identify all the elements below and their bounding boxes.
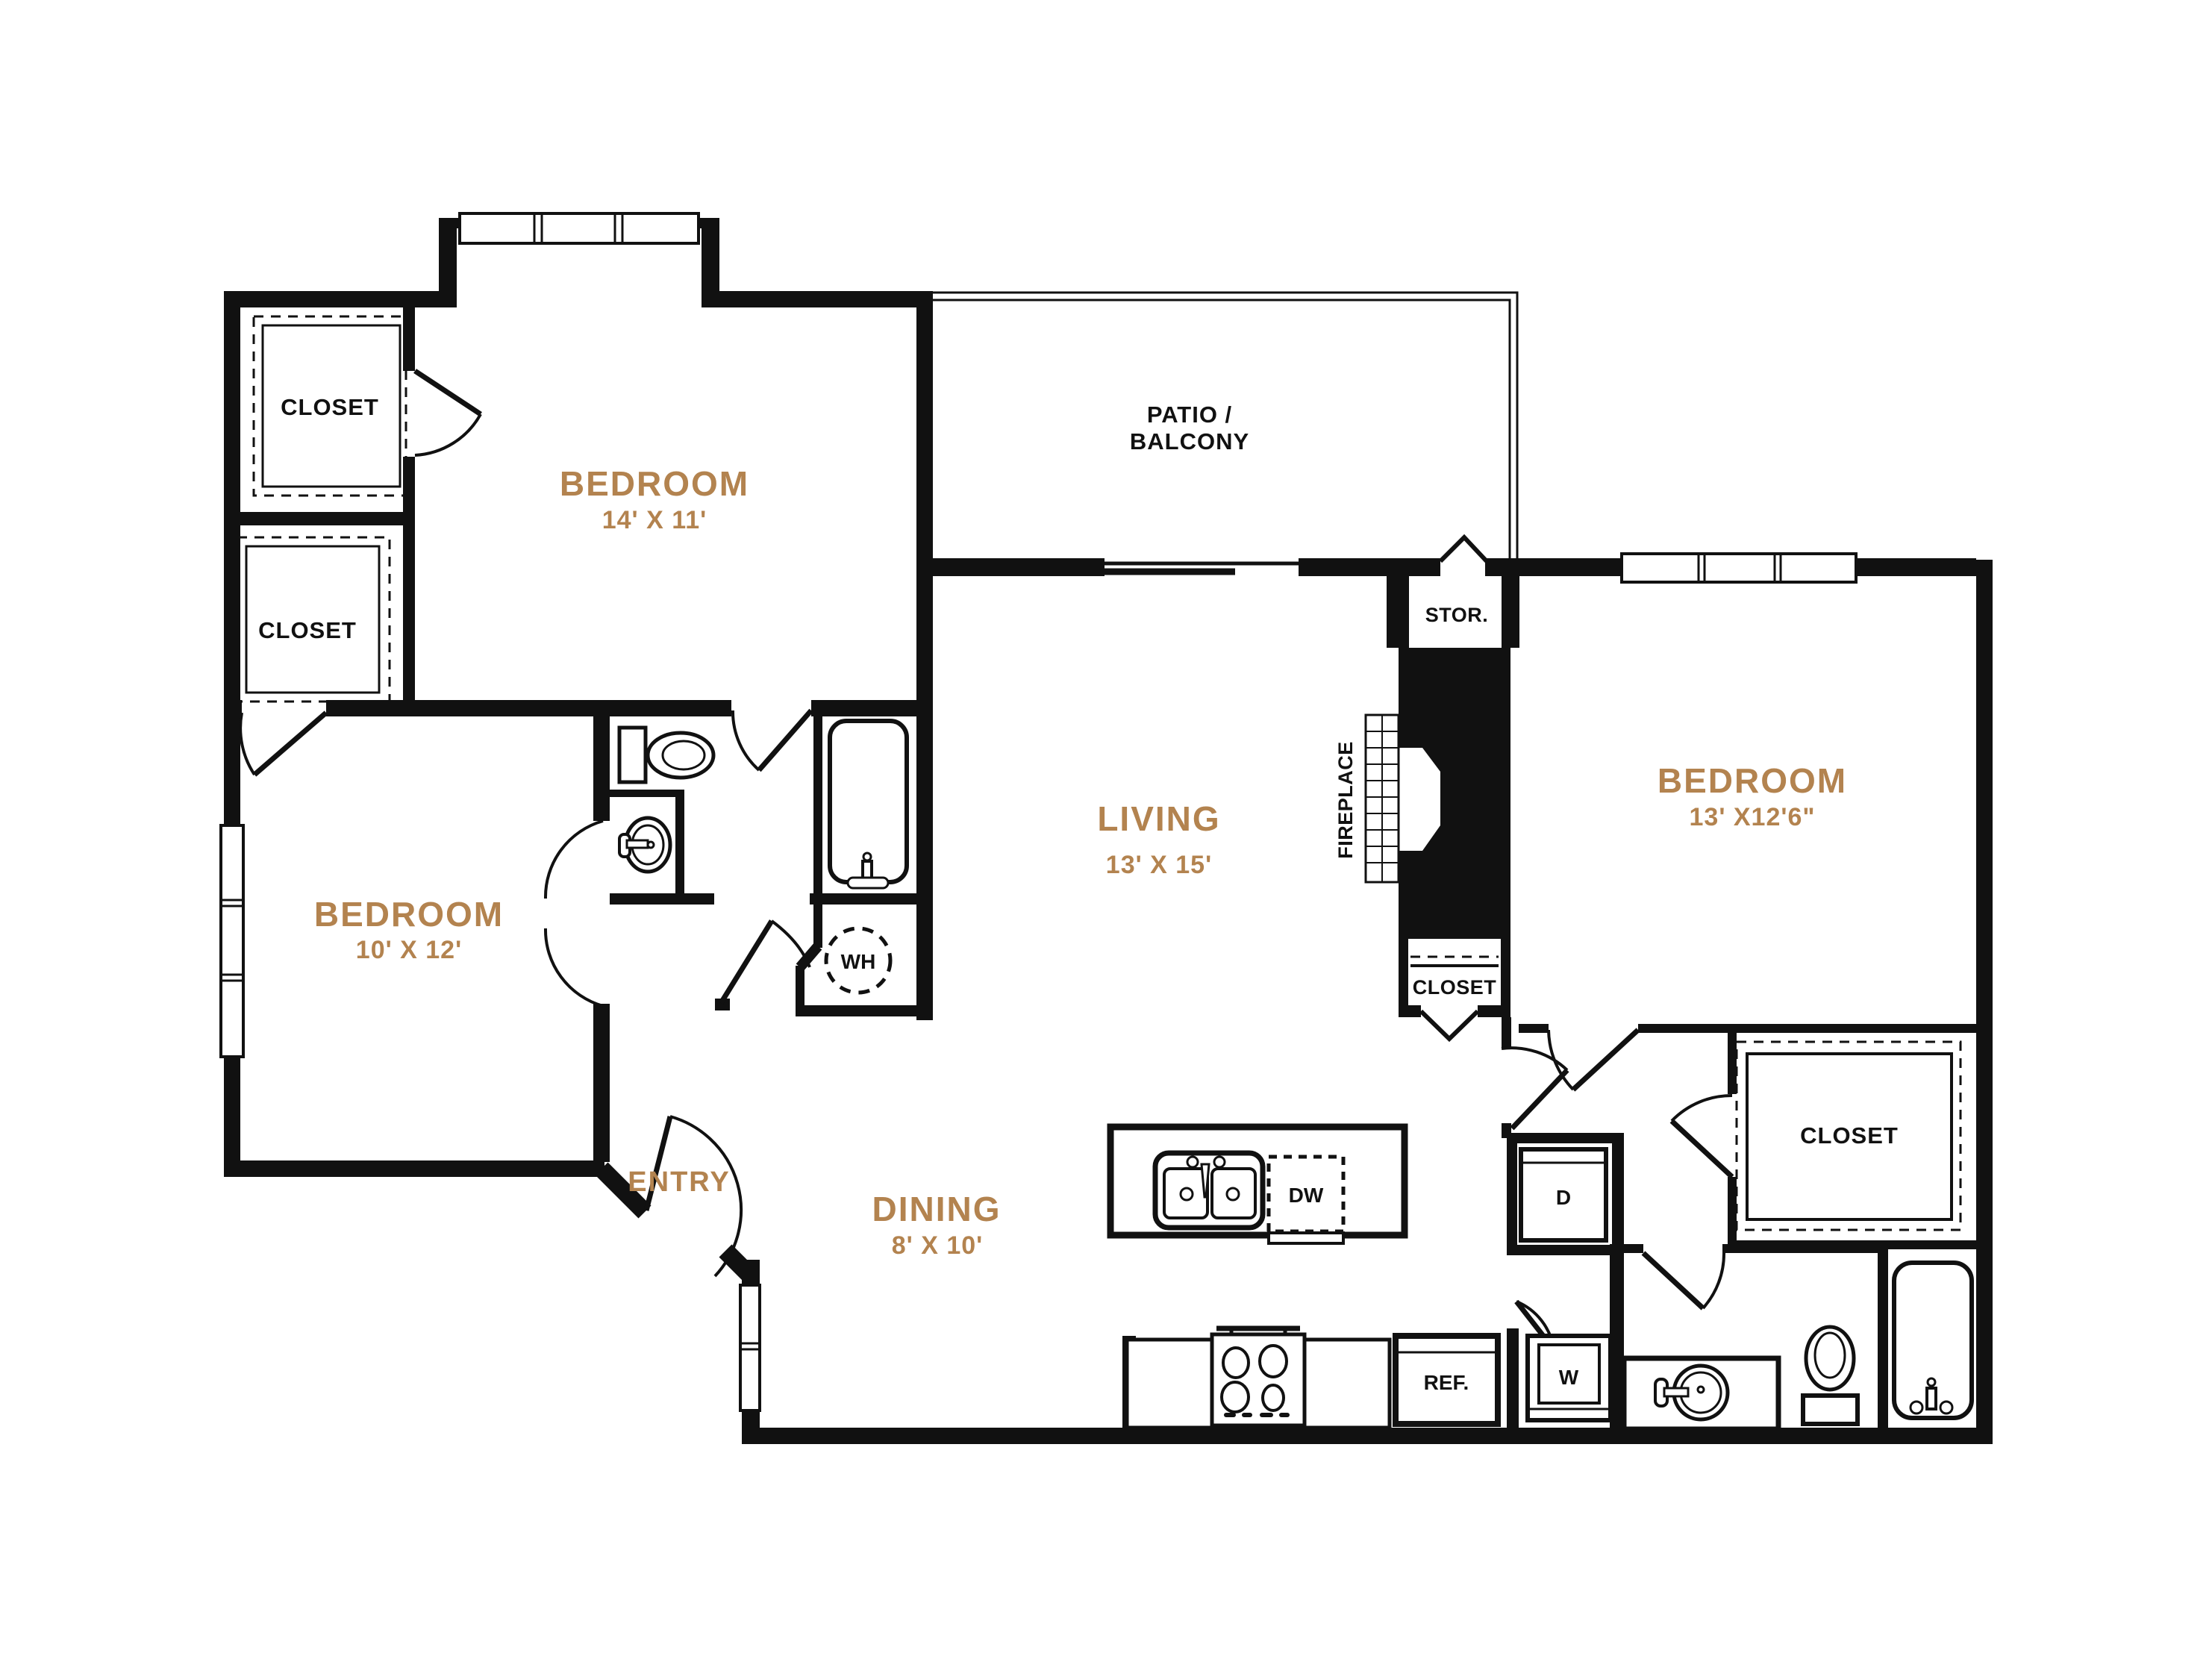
windows: [221, 213, 1856, 1410]
living-dims: 13' X 15': [1106, 851, 1212, 879]
wall-segment: [1728, 1177, 1737, 1245]
wall-segment: [813, 905, 822, 948]
bedroom1-label: BEDROOM: [560, 464, 749, 503]
tub-drain: [863, 853, 871, 860]
closet-door-arc: [240, 713, 254, 775]
wall-segment: [796, 966, 804, 1010]
wall-segment: [326, 700, 731, 716]
living-label: LIVING: [1097, 799, 1220, 838]
wall-segment: [742, 1428, 1993, 1444]
toilet-bowl-inner: [1815, 1333, 1845, 1378]
closet-wall: [1399, 1005, 1421, 1017]
wall-segment: [1976, 560, 1993, 1444]
bathroom2-fixtures: [1624, 1263, 1972, 1429]
wall-segment: [811, 700, 933, 716]
storage-door: [1440, 537, 1487, 561]
wall-segment: [813, 707, 822, 905]
stove: [1212, 1334, 1305, 1425]
floor-plan-drawing: BEDROOM 14' X 11' BEDROOM 10' X 12' BEDR…: [0, 0, 2212, 1662]
double-door-arc: [546, 821, 603, 899]
toilet-tank: [1803, 1396, 1858, 1424]
dryer-label: D: [1556, 1186, 1571, 1209]
basin-drain: [1227, 1188, 1239, 1200]
basin-drain: [1181, 1188, 1193, 1200]
burner: [1222, 1382, 1249, 1412]
entry-label: ENTRY: [628, 1166, 730, 1198]
kitchen-island: [1110, 1127, 1405, 1243]
entry-window: [740, 1285, 760, 1410]
closet-door-leaf: [415, 371, 481, 414]
wall-segment: [224, 291, 440, 307]
living-door-leaf: [1512, 1070, 1567, 1128]
burner: [1223, 1348, 1249, 1378]
interior-walls: [224, 291, 1976, 1429]
tub-faucet: [1927, 1388, 1936, 1409]
wall-segment: [718, 291, 931, 307]
wall-segment: [810, 893, 933, 905]
closet-door-arc: [1672, 1096, 1732, 1121]
wall-segment: [593, 707, 610, 821]
wall-segment: [1502, 1017, 1511, 1049]
wall-segment: [1507, 1143, 1517, 1255]
wall-segment: [224, 1055, 240, 1177]
wall-segment: [1507, 1328, 1519, 1428]
floor-plan-page: BEDROOM 14' X 11' BEDROOM 10' X 12' BEDR…: [0, 0, 2212, 1662]
wall-segment: [439, 218, 457, 307]
wall-segment: [1728, 1033, 1737, 1094]
bedroom3-dims: 10' X 12': [356, 936, 462, 964]
closet-door-leaf: [254, 713, 326, 775]
washer-label: W: [1559, 1366, 1579, 1389]
wall-segment: [1878, 1253, 1888, 1428]
dining-label: DINING: [872, 1190, 1002, 1228]
wall-segment: [610, 790, 684, 797]
wall-segment: [403, 457, 415, 513]
wall-segment: [403, 525, 415, 707]
sink-drain: [1698, 1387, 1704, 1393]
wall-segment: [224, 1160, 604, 1177]
closet-bedroom2-label: CLOSET: [1800, 1122, 1899, 1149]
bathroom-door-leaf: [759, 710, 811, 770]
bathroom2-door-arc: [1703, 1253, 1724, 1308]
sink-faucet-bar: [627, 840, 648, 848]
storage-wall: [1502, 560, 1519, 648]
wall-segment: [1722, 1244, 1888, 1253]
closet-hall-label: CLOSET: [1413, 976, 1497, 999]
bedroom2-window: [1622, 554, 1856, 582]
wall-segment: [916, 291, 933, 707]
dishwasher-label: DW: [1289, 1184, 1324, 1207]
sink-faucet-bar: [1664, 1388, 1688, 1396]
closet-top-left-label: CLOSET: [281, 394, 379, 420]
toilet-tank: [619, 728, 646, 782]
tub-knob: [1910, 1402, 1922, 1413]
bedroom2-dims: 13' X12'6": [1690, 803, 1816, 831]
closet-door-arc: [415, 414, 481, 455]
wall-segment: [675, 790, 684, 899]
double-door-arc: [546, 928, 603, 1006]
wall-segment: [1638, 1024, 1728, 1033]
patio-label-line1: PATIO /: [1147, 402, 1232, 428]
closet-wall: [1478, 1005, 1510, 1017]
bedroom2-door-leaf: [1573, 1030, 1638, 1090]
patio-label-line2: BALCONY: [1130, 428, 1249, 454]
wall-segment: [1610, 1244, 1643, 1253]
refrigerator-label: REF.: [1424, 1371, 1469, 1394]
faucet-knob: [1214, 1157, 1225, 1167]
labels: BEDROOM 14' X 11' BEDROOM 10' X 12' BEDR…: [258, 394, 1899, 1394]
tub-faucet-base: [848, 878, 888, 888]
bathroom2-door-leaf: [1643, 1253, 1703, 1308]
fireplace-storage: [1366, 560, 1519, 1017]
wall-segment: [593, 1004, 610, 1162]
storage-label: STOR.: [1425, 604, 1489, 626]
bay-window: [460, 213, 699, 243]
wall-segment: [610, 893, 714, 905]
burner: [1263, 1385, 1284, 1410]
wall-segment: [923, 558, 1105, 576]
wall-segment: [1507, 1245, 1624, 1255]
storage-wall: [1387, 560, 1409, 648]
wall-segment: [702, 218, 719, 307]
bedroom3-label: BEDROOM: [314, 895, 504, 934]
wall-segment: [796, 1005, 933, 1016]
wall-segment: [1855, 558, 1976, 576]
toilet-bowl-inner: [663, 741, 704, 769]
wall-segment: [224, 512, 415, 525]
burner: [1260, 1346, 1287, 1377]
faucet-knob: [1187, 1157, 1198, 1167]
closet-mid-left-label: CLOSET: [258, 617, 357, 643]
closet-door-v: [1421, 1011, 1478, 1039]
left-window: [221, 825, 243, 1057]
dishwasher-notch: [1269, 1233, 1343, 1243]
wall-segment: [1612, 1133, 1624, 1255]
bedroom2-label: BEDROOM: [1658, 761, 1847, 800]
wall-segment: [1519, 1024, 1549, 1033]
closet-door-leaf: [1672, 1121, 1732, 1177]
tub-knob: [1940, 1402, 1952, 1413]
bathroom-door-arc: [733, 710, 759, 770]
tub-drain: [1928, 1378, 1935, 1386]
wall-segment: [1507, 1133, 1624, 1143]
wall-segment: [1728, 1024, 1976, 1033]
wall-segment: [1299, 558, 1440, 576]
wall-segment: [916, 707, 933, 1020]
water-heater-label: WH: [841, 950, 876, 973]
hall-door-leaf: [721, 921, 772, 1003]
fireplace-label: FIREPLACE: [1334, 741, 1357, 859]
wall-segment: [403, 307, 415, 371]
bedroom1-dims: 14' X 11': [602, 506, 707, 534]
dining-dims: 8' X 10': [892, 1231, 983, 1260]
